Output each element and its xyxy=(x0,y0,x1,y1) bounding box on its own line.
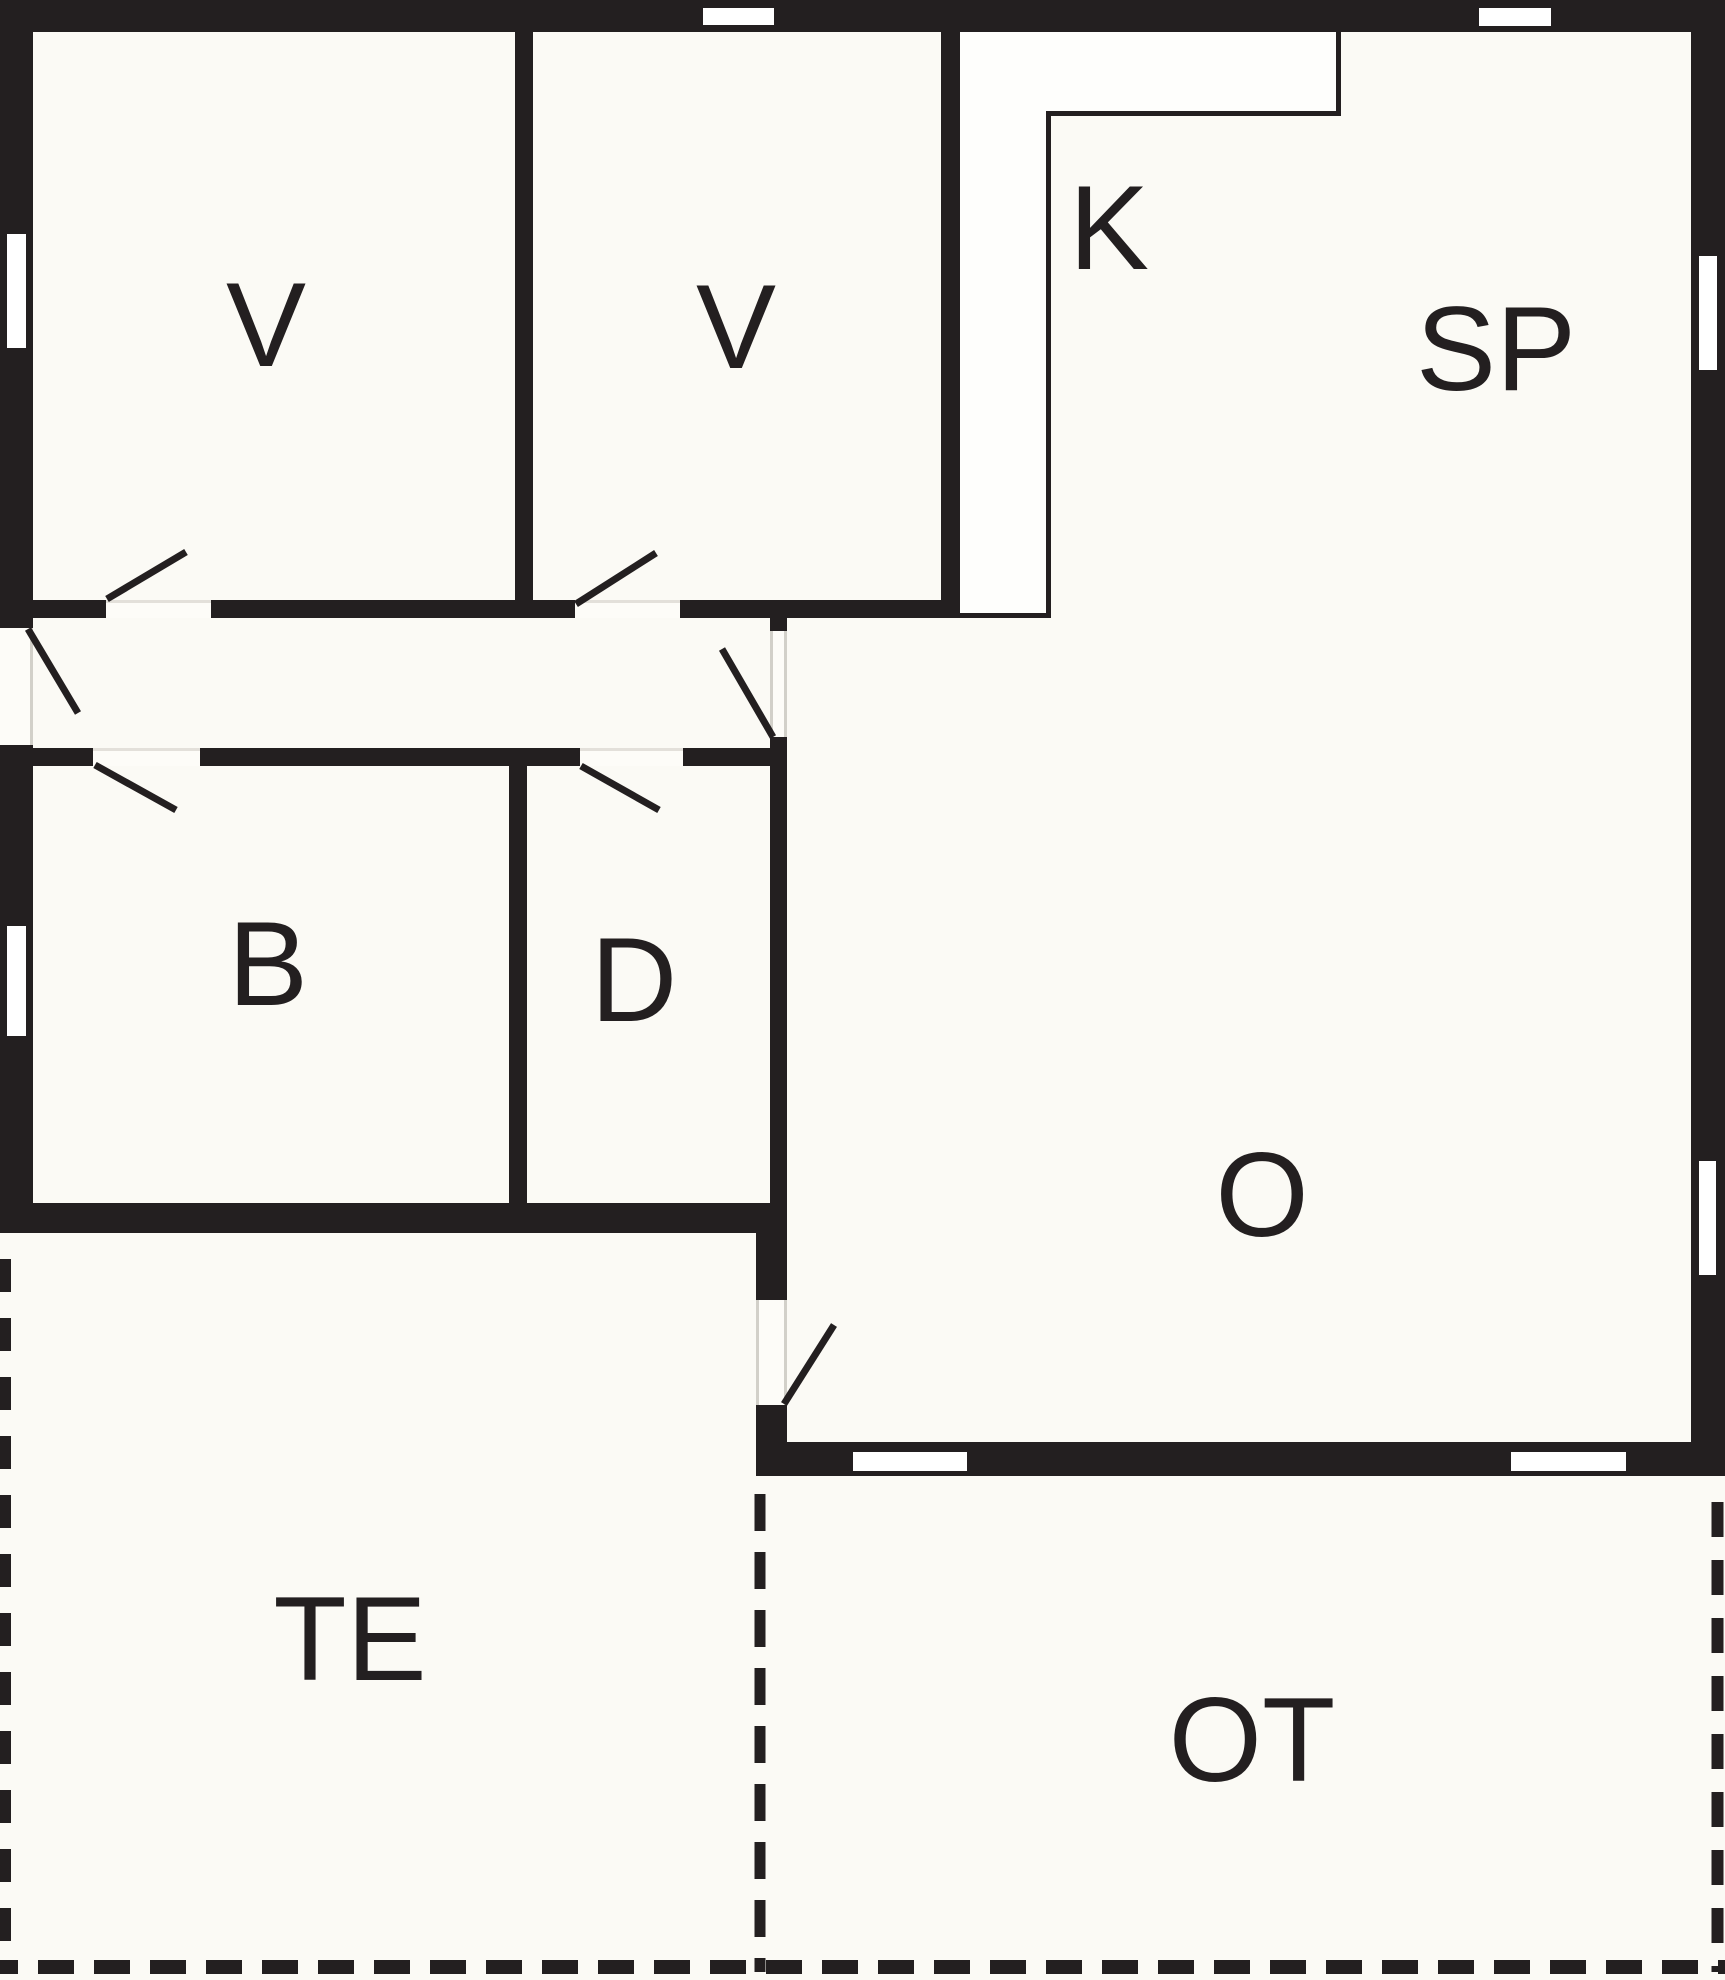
svg-text:TE: TE xyxy=(273,1572,426,1706)
svg-text:D: D xyxy=(591,913,678,1047)
svg-text:SP: SP xyxy=(1416,282,1576,416)
svg-text:O: O xyxy=(1215,1128,1308,1262)
svg-text:V: V xyxy=(226,258,306,392)
svg-text:V: V xyxy=(696,260,776,394)
svg-text:B: B xyxy=(228,897,308,1031)
svg-text:OT: OT xyxy=(1169,1673,1336,1807)
svg-text:K: K xyxy=(1069,161,1149,295)
